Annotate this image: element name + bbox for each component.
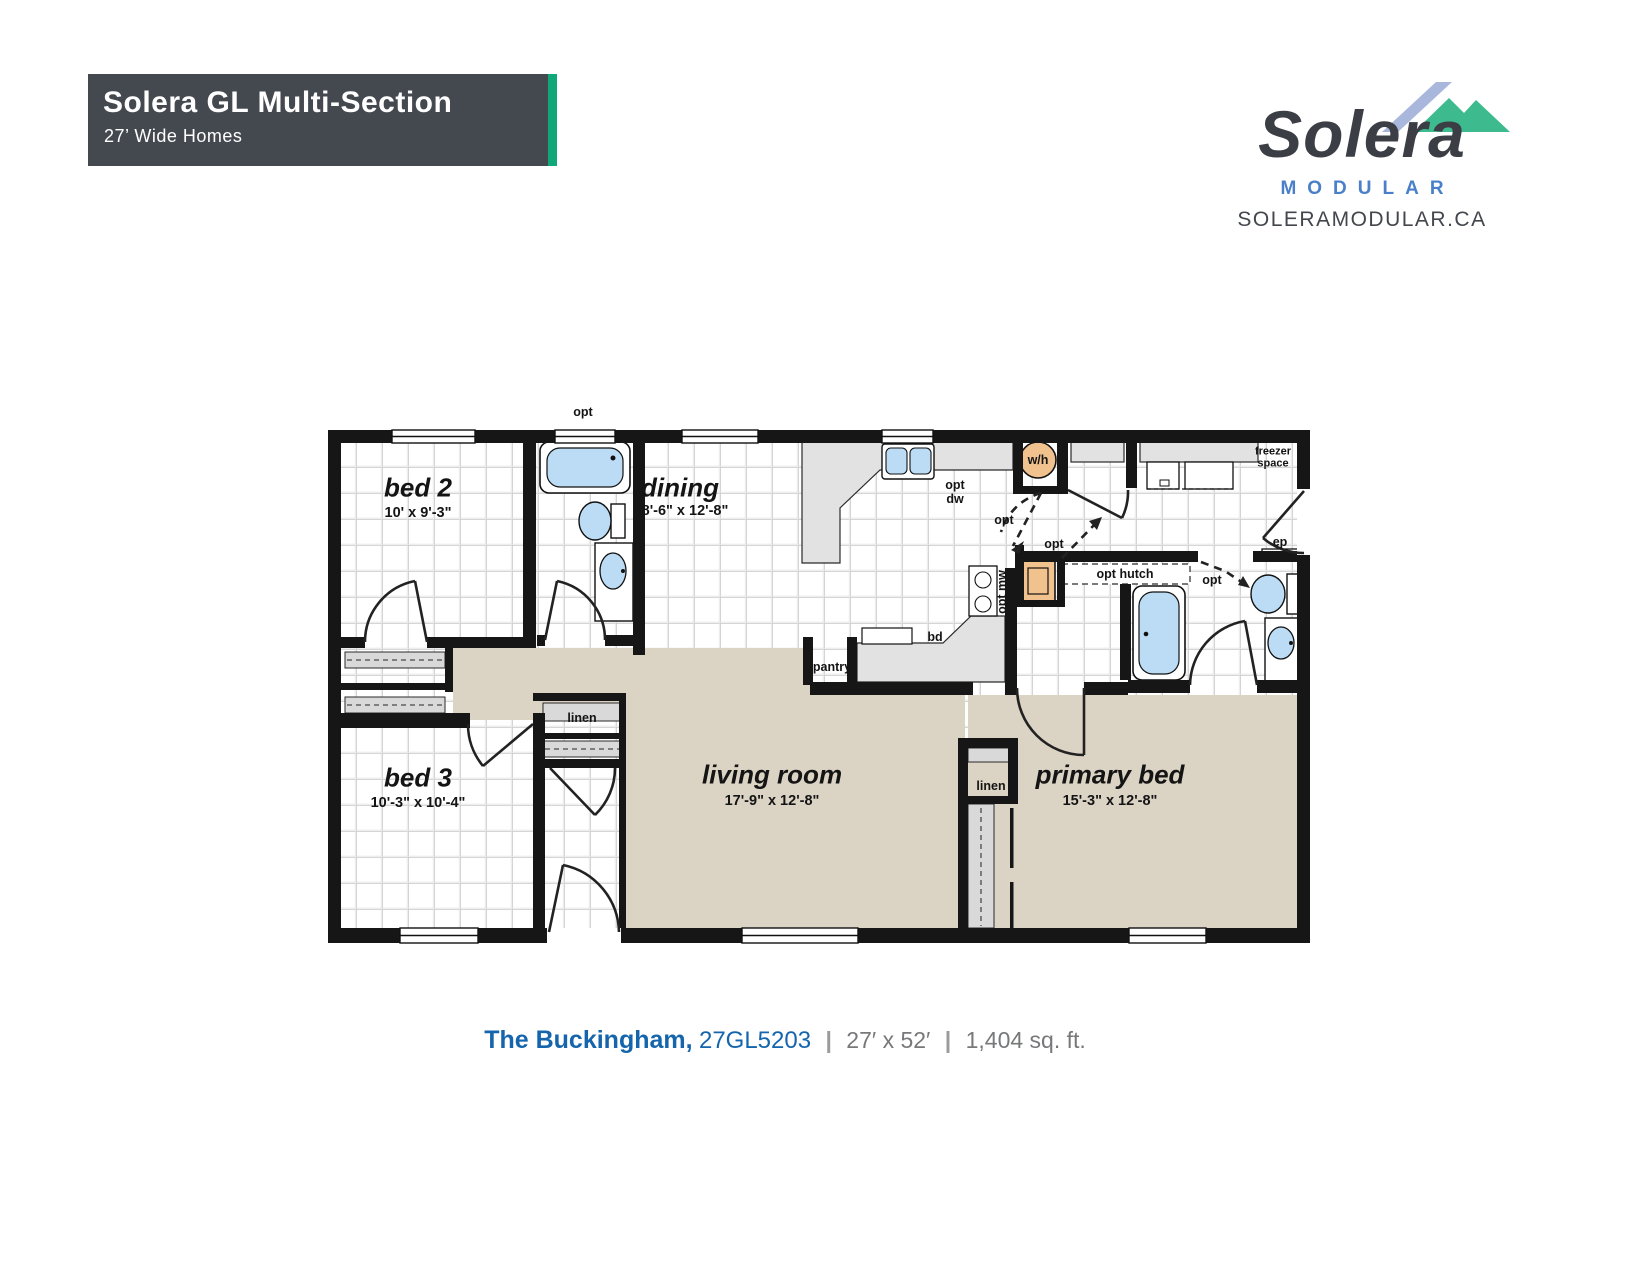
water-heater xyxy=(1020,442,1056,478)
bath1-toilet xyxy=(579,502,625,540)
opt-hutch-niche xyxy=(1062,564,1190,584)
floor-plan xyxy=(305,390,1320,950)
brand-tagline: MODULAR xyxy=(1222,178,1502,200)
brand-website-link[interactable]: SOLERAMODULAR.CA xyxy=(1190,208,1534,232)
bath1-sink xyxy=(595,543,633,621)
brand-wordmark: Solera xyxy=(1222,96,1502,172)
bath2-sink xyxy=(1265,618,1298,684)
plan-dimensions: 27′ x 52′ xyxy=(846,1027,930,1053)
caption-divider-1: | xyxy=(817,1027,839,1053)
washer-dryer xyxy=(1147,462,1233,489)
caption-divider-2: | xyxy=(937,1027,959,1053)
bath2-toilet xyxy=(1251,574,1298,614)
bath2-tub xyxy=(1133,586,1185,680)
page-title: Solera GL Multi-Section xyxy=(103,86,543,120)
brochure-page: Solera GL Multi-Section 27’ Wide Homes S… xyxy=(0,0,1650,1275)
page-subtitle: 27’ Wide Homes xyxy=(104,126,242,147)
furnace-box xyxy=(1021,560,1055,602)
plan-model: 27GL5203 xyxy=(699,1027,811,1054)
plan-area: 1,404 sq. ft. xyxy=(966,1027,1086,1053)
kitchen-sink xyxy=(882,444,934,479)
bath1-tub xyxy=(540,442,630,493)
header-accent-bar xyxy=(548,74,557,166)
plan-caption: The Buckingham, 27GL5203 | 27′ x 52′ | 1… xyxy=(0,1026,1570,1055)
plan-name: The Buckingham, xyxy=(484,1026,692,1054)
